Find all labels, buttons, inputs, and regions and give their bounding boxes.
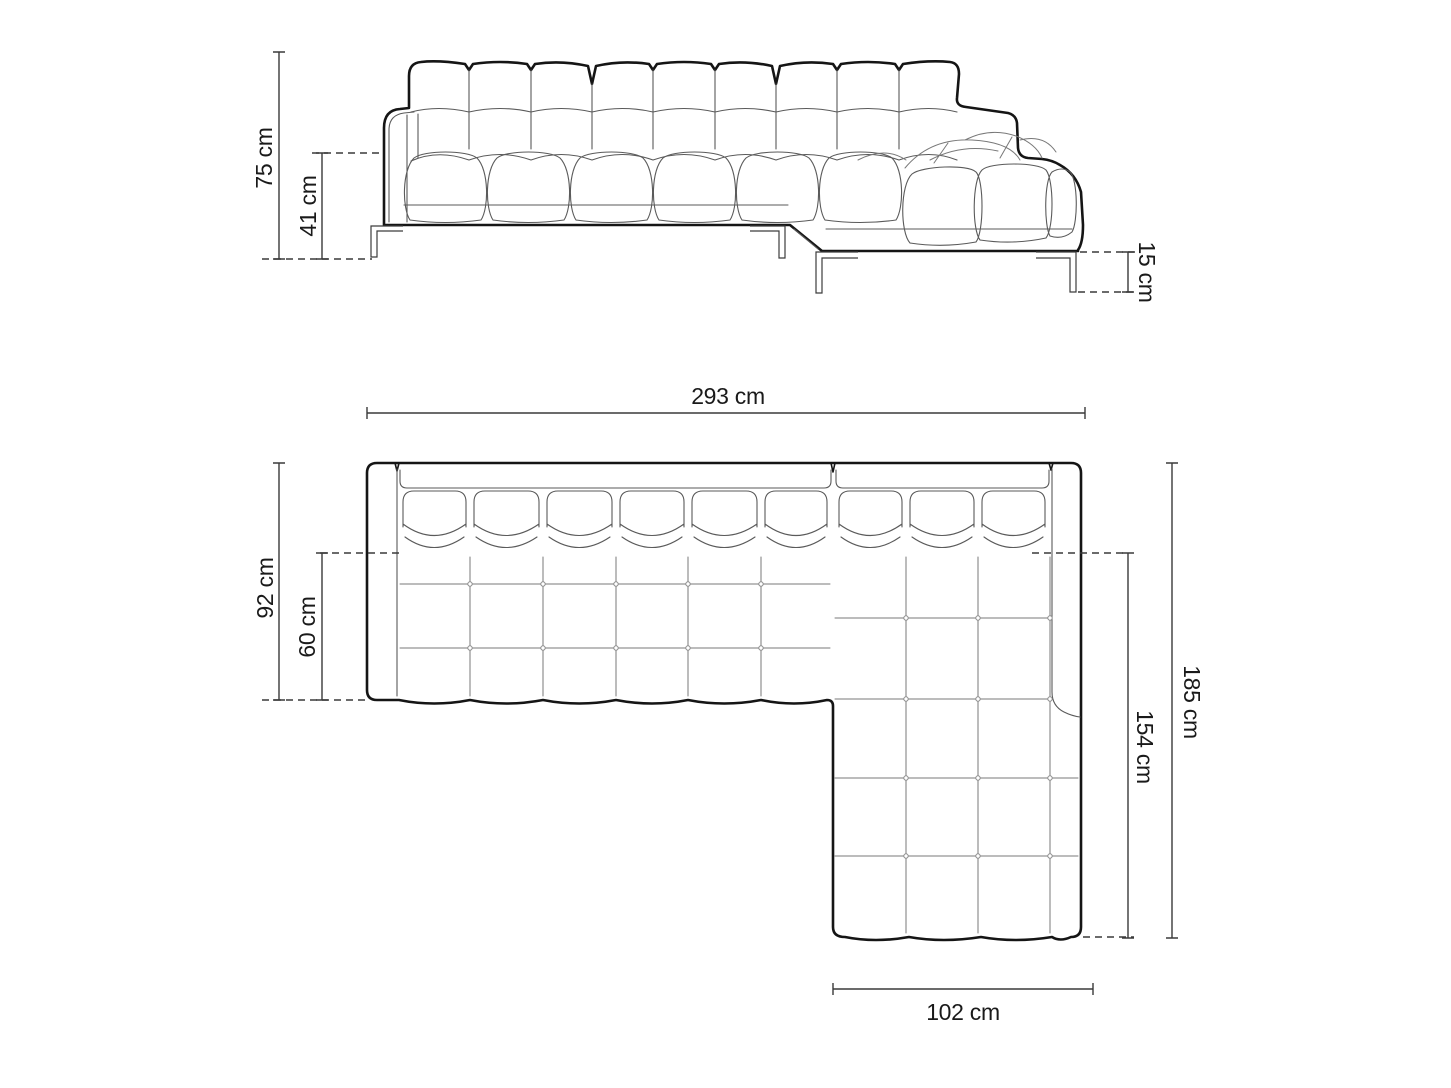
- seat-height-label: 41 cm: [295, 175, 321, 236]
- top-plan-view: 293 cm 92 cm 60 cm 185 cm 154 cm 102 cm: [252, 383, 1205, 1025]
- front-dimension-overall-height: 75 cm: [251, 52, 285, 259]
- front-sofa-outline: [384, 61, 1083, 251]
- plan-module-notches: [395, 463, 1053, 472]
- plan-reference-dashes: [262, 553, 1134, 937]
- overall-width-label: 293 cm: [691, 383, 765, 409]
- overall-height-label: 75 cm: [251, 127, 277, 188]
- diagram-canvas: 75 cm 41 cm 15 cm: [0, 0, 1451, 1088]
- front-leg-left: [371, 226, 403, 257]
- plan-dimension-chaise-length: 154 cm: [1122, 553, 1158, 938]
- plan-main-seat-grid: [400, 557, 830, 696]
- front-leg-chaise-left: [816, 252, 858, 293]
- plan-tuft-buttons: [468, 582, 1052, 858]
- front-seat-cushions: [404, 152, 901, 223]
- seat-depth-label: 60 cm: [294, 596, 320, 657]
- front-dimension-seat-height: 41 cm: [295, 153, 328, 259]
- plan-dimension-chaise-width: 102 cm: [833, 983, 1093, 1025]
- front-elevation-view: 75 cm 41 cm 15 cm: [251, 52, 1160, 303]
- leg-height-label: 15 cm: [1134, 241, 1160, 302]
- body-depth-label: 92 cm: [252, 557, 278, 618]
- chaise-width-label: 102 cm: [926, 999, 1000, 1025]
- plan-dimension-overall-depth: 185 cm: [1166, 463, 1205, 938]
- plan-chaise-seat-grid: [835, 557, 1078, 933]
- front-leg-chaise-right: [1036, 252, 1076, 292]
- front-back-tuft-divisions: [469, 70, 899, 149]
- overall-depth-label: 185 cm: [1179, 665, 1205, 739]
- plan-dimension-body-depth: 92 cm: [252, 463, 285, 700]
- plan-dimension-seat-depth: 60 cm: [294, 553, 328, 700]
- plan-backrest-band: [400, 470, 1049, 488]
- plan-dimension-overall-width: 293 cm: [367, 383, 1085, 419]
- front-chaise-top-tufting: [858, 132, 1056, 168]
- plan-sofa-outline: [367, 463, 1081, 940]
- plan-back-cushions: [403, 491, 1045, 548]
- front-back-tuft-midline: [411, 109, 957, 113]
- front-chaise-cushions: [903, 164, 1077, 245]
- front-back-bottom-scallops: [411, 155, 957, 162]
- sofa-dimension-diagram: 75 cm 41 cm 15 cm: [0, 0, 1451, 1088]
- front-leg-middle: [750, 226, 785, 258]
- plan-right-arm-inner: [1052, 469, 1080, 717]
- front-dimension-leg-height: 15 cm: [1122, 241, 1160, 302]
- chaise-length-label: 154 cm: [1132, 710, 1158, 784]
